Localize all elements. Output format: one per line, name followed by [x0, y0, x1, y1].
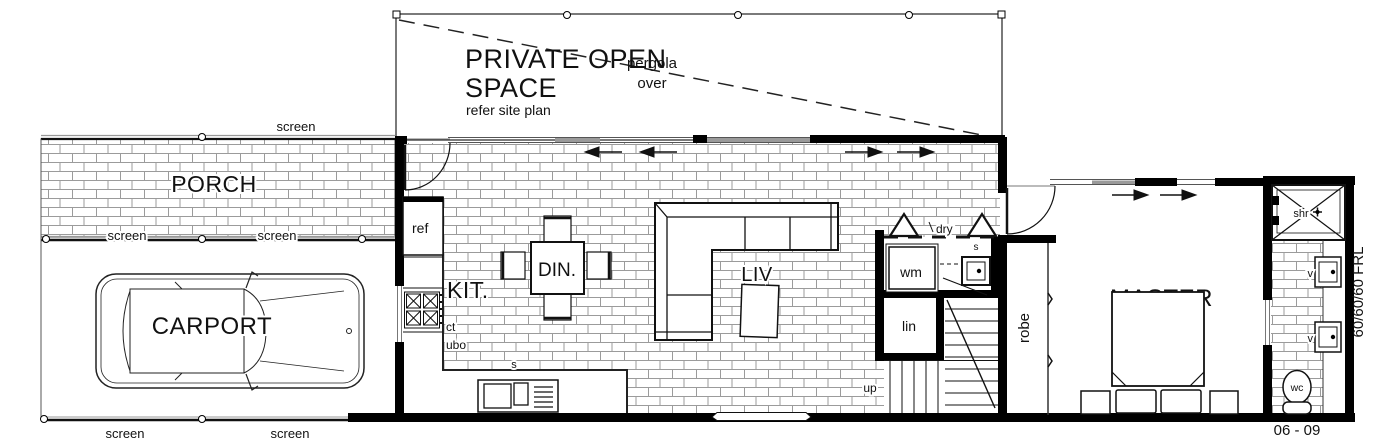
linen-label: lin — [902, 318, 916, 334]
pergola-post-corner-right — [998, 11, 1005, 18]
pergola-post-corner-left — [393, 11, 400, 18]
floor-plan-page: PRIVATE OPEN SPACE refer site plan pergo… — [0, 0, 1400, 444]
private-open-space-label-line2: SPACE — [465, 73, 557, 103]
coffee-table — [740, 284, 779, 337]
laundry-trough-label: s — [974, 242, 979, 253]
bottom-wall-niche — [712, 413, 811, 421]
porch-label: PORCH — [171, 171, 257, 197]
shower-rose-dot — [1316, 210, 1320, 214]
robe-label: robe — [1016, 313, 1033, 343]
ensuite-left-wall-lower — [1263, 345, 1272, 421]
private-open-space-area: PRIVATE OPEN SPACE refer site plan pergo… — [393, 11, 1005, 140]
fire-rating-note: 60/60/60 FRL — [1350, 247, 1367, 338]
bed — [1112, 292, 1204, 413]
screen-post — [199, 416, 206, 423]
robe-top-wall — [998, 235, 1056, 243]
vanity-basin-1 — [1315, 257, 1341, 287]
pergola-label-line1: pergola — [627, 55, 678, 72]
screen-post — [41, 416, 48, 423]
pillow — [1161, 390, 1201, 413]
toilet-cistern — [1283, 402, 1311, 414]
dining-chair-bottom — [544, 294, 571, 320]
linen-right-wall — [936, 290, 944, 360]
screen-label-carport-left: screen — [105, 426, 144, 441]
ensuite-top-wall — [1263, 176, 1355, 185]
master-window-arrows — [1112, 190, 1196, 200]
top-wall-east-seg — [810, 135, 1005, 143]
linen-bottom-wall — [875, 353, 944, 361]
dining-label: DIN. — [538, 260, 576, 281]
sliding-glass-panel — [555, 138, 600, 142]
shower-label: shr — [1293, 208, 1309, 220]
wall-left-lower — [395, 342, 404, 421]
carport-area: screen screen CARPORT — [41, 272, 401, 441]
master-top-seg1 — [1135, 178, 1177, 186]
wall-top-left-stub — [395, 136, 407, 144]
bedside-table-left — [1081, 391, 1110, 414]
floor-plan-svg: PRIVATE OPEN SPACE refer site plan pergo… — [0, 0, 1400, 444]
dining-chair-top — [544, 216, 571, 242]
dryer-label: dry — [936, 222, 953, 236]
screen-label-porch-right: screen — [257, 228, 296, 243]
screen-label-carport-right: screen — [270, 426, 309, 441]
toilet-label: wc — [1290, 382, 1304, 394]
vanity-label-2: v — [1308, 333, 1314, 345]
wall-living-east — [998, 137, 1007, 193]
fridge-label: ref — [412, 220, 428, 236]
washing-machine-label: wm — [899, 264, 922, 280]
living-label: LIV — [741, 264, 773, 286]
private-open-space-note: refer site plan — [466, 102, 551, 118]
screen-label-porch-left: screen — [107, 228, 146, 243]
arrow-right-icon — [1134, 190, 1148, 200]
shower-tap — [1272, 216, 1279, 225]
bedside-table-right — [1210, 391, 1238, 414]
dining-chair-left — [501, 252, 525, 279]
screen-post — [359, 236, 366, 243]
sliding-glass-panel — [707, 138, 812, 142]
vanity-basin-2 — [1315, 322, 1341, 352]
kitchen-sink — [478, 380, 558, 412]
master-bed-area: MASTER BED — [1081, 190, 1238, 414]
master-door-swing — [1007, 186, 1055, 234]
stairs-up-label: up — [863, 381, 877, 395]
shower-tap — [1272, 196, 1279, 205]
kitchen-window — [395, 286, 404, 342]
master-window-panel — [1092, 181, 1135, 185]
robe-area: robe — [1016, 243, 1052, 415]
master-top-seg2 — [1215, 178, 1270, 186]
top-wall-mullion — [693, 135, 707, 143]
screen-post — [43, 236, 50, 243]
carport-label: CARPORT — [152, 313, 272, 340]
laundry-right-wall — [991, 237, 999, 298]
pergola-label-line2: over — [637, 75, 666, 92]
screen-post — [199, 236, 206, 243]
wall-bottom — [348, 413, 1355, 422]
ensuite-left-wall-upper — [1263, 176, 1272, 300]
master-door — [1007, 186, 1055, 234]
laundry-trough — [962, 257, 990, 285]
pergola-post — [735, 12, 742, 19]
arrow-right-icon — [1182, 190, 1196, 200]
fridge-top-band — [403, 197, 443, 202]
linen-left-wall — [875, 298, 884, 360]
vanity-label-1: v — [1308, 268, 1314, 280]
dining-chair-right — [587, 252, 611, 279]
screen-post — [199, 134, 206, 141]
pergola-post — [564, 12, 571, 19]
wall-stairs-robe — [998, 235, 1007, 422]
laundry-left-wall — [875, 230, 884, 298]
screen-label-top: screen — [276, 119, 315, 134]
oven-label: ubo — [446, 338, 466, 352]
kitchen-label: KIT. — [447, 277, 489, 303]
cooktop-label: ct — [446, 320, 456, 334]
kitchen-sink-label: s — [511, 359, 517, 371]
sheet-reference: 06 - 09 — [1274, 422, 1321, 439]
pergola-post — [906, 12, 913, 19]
pillow — [1116, 390, 1156, 413]
